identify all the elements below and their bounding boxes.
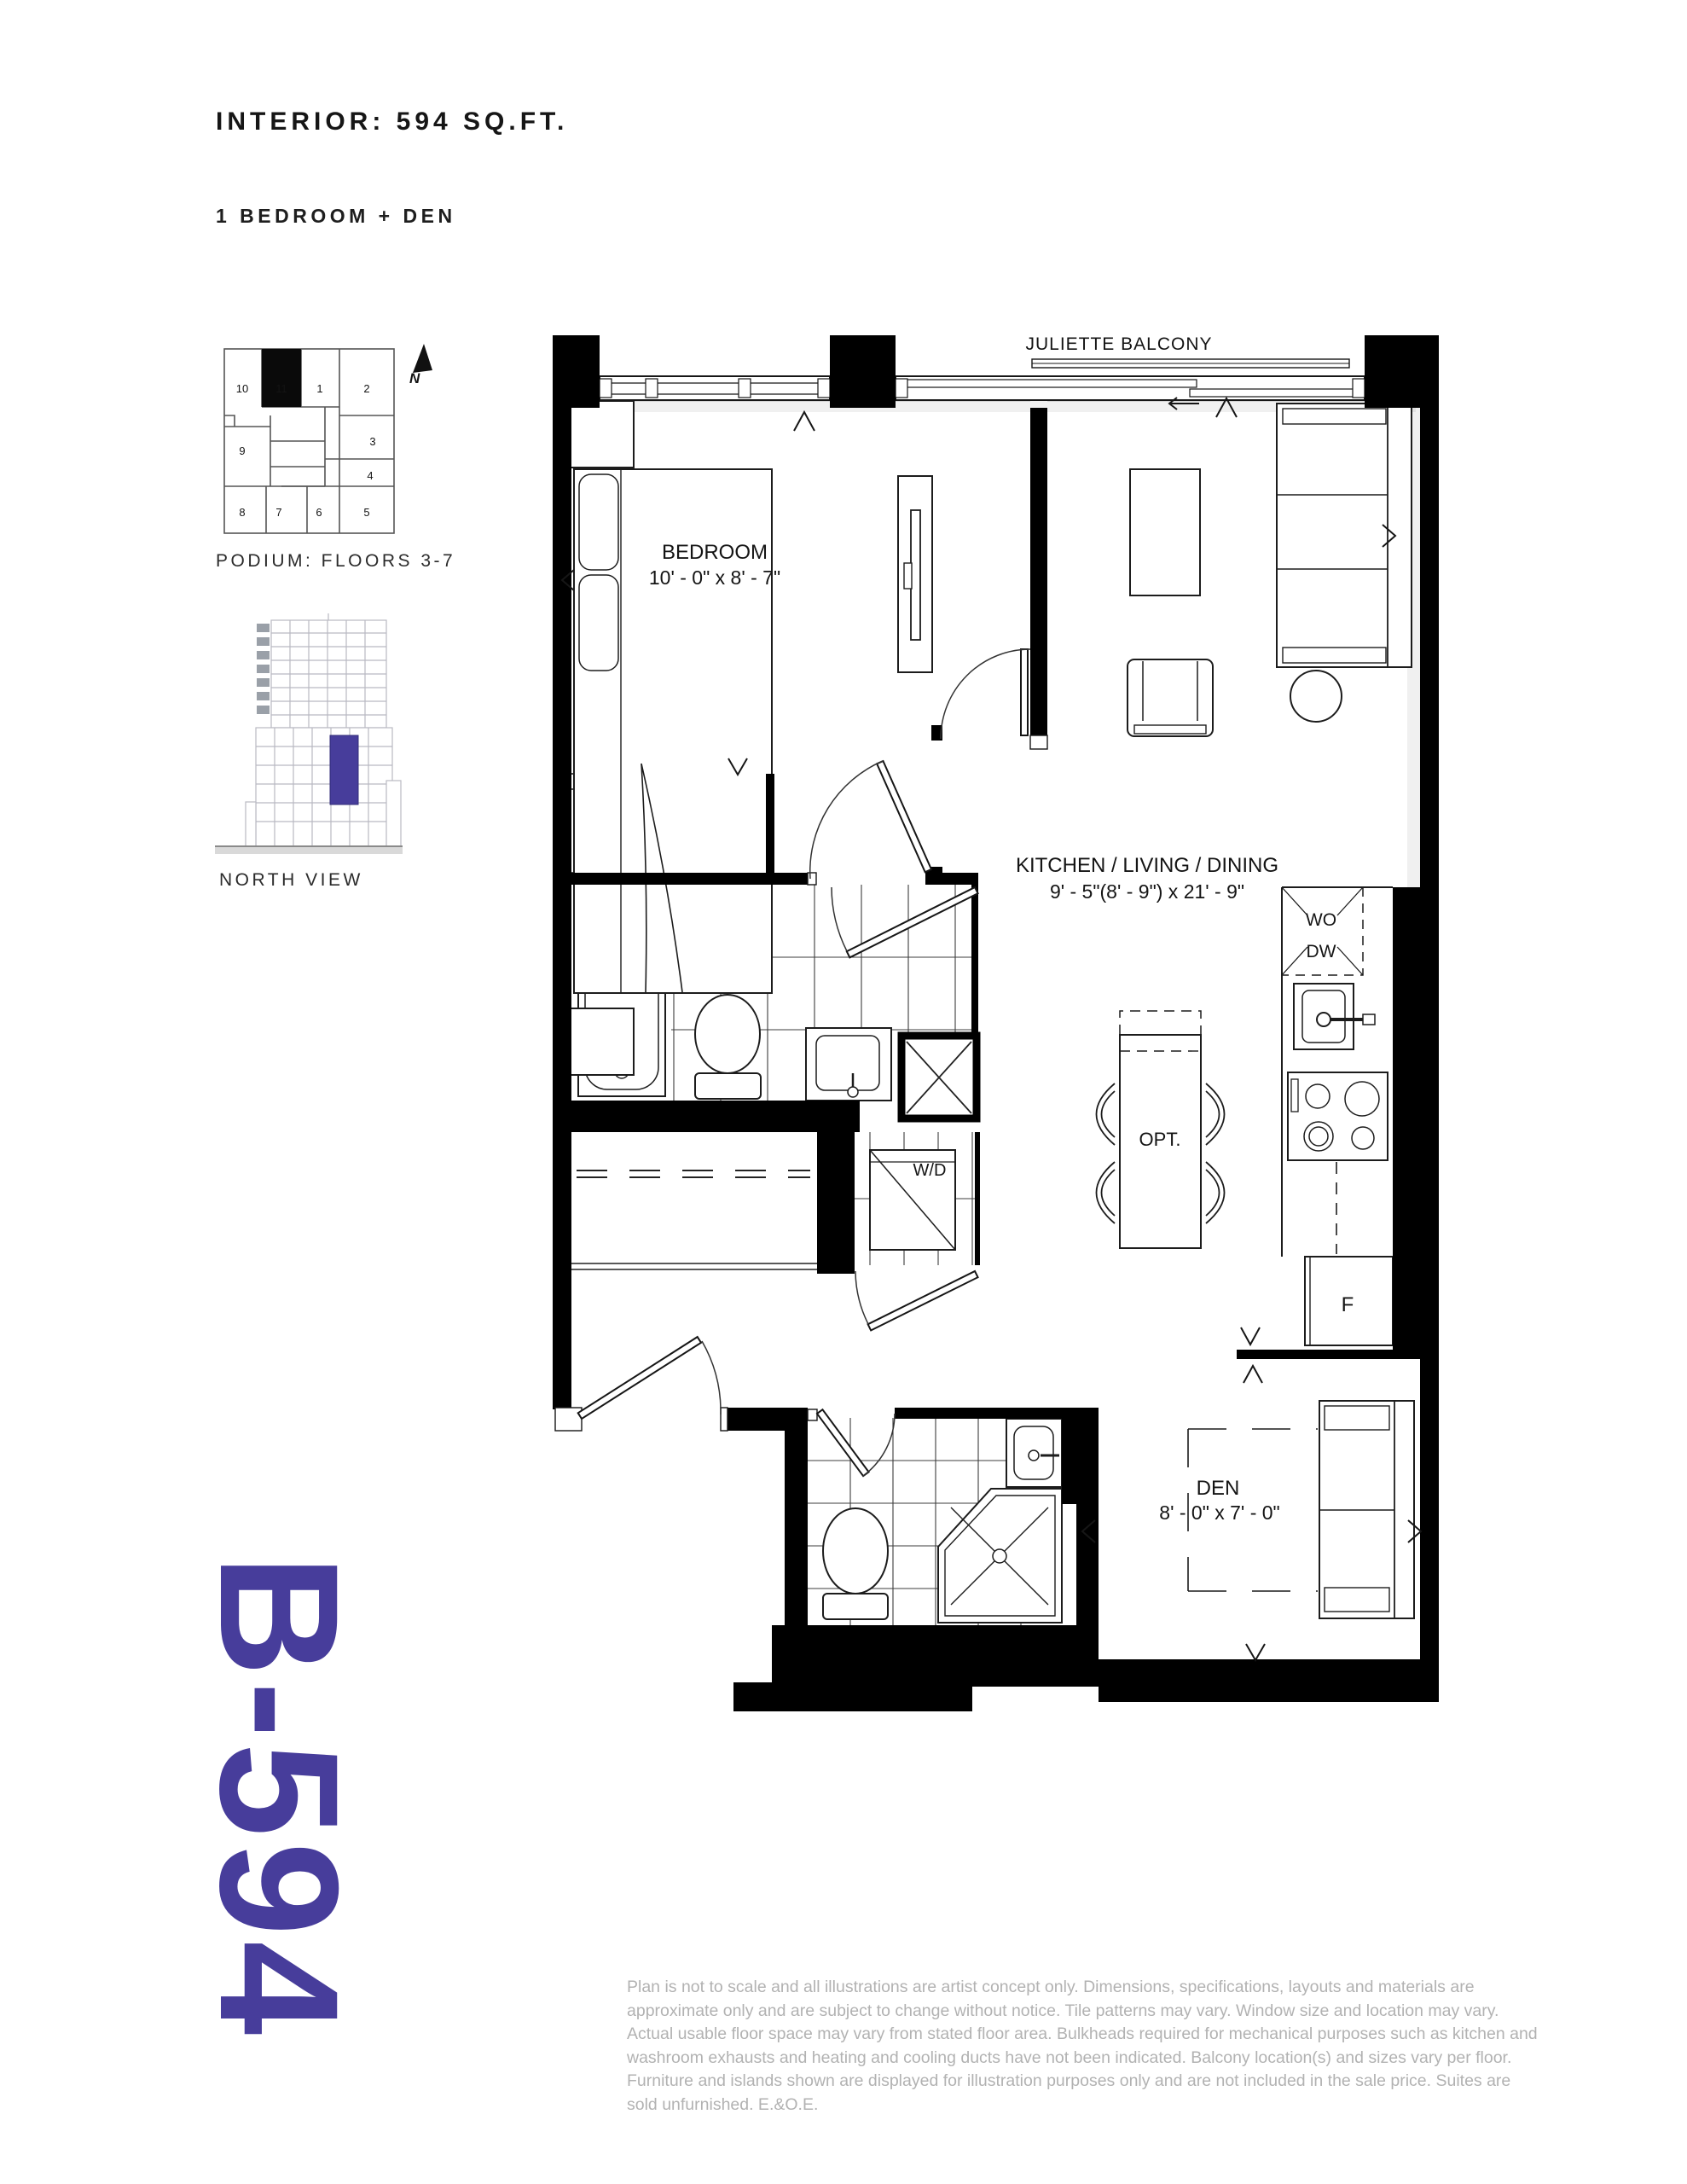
pillow (579, 575, 618, 671)
nightstand (567, 1008, 634, 1075)
chevron-down-icon (1246, 1644, 1265, 1660)
dishwasher-label: DW (1307, 942, 1336, 961)
sofa (1277, 404, 1412, 667)
keyplan-unit-numbers: 10 11 1 2 3 4 5 6 7 8 9 (236, 382, 376, 519)
chevron-up-icon (1244, 1366, 1262, 1383)
washer-dryer-label: W/D (913, 1161, 947, 1180)
bedroom-door-swing (810, 761, 883, 879)
room-name-den: DEN (1197, 1477, 1240, 1500)
keyplan: 10 11 1 2 3 4 5 6 7 8 9 N (213, 322, 443, 544)
living-furniture (898, 404, 1412, 736)
bedroom-furniture (567, 401, 772, 1075)
bedroom-door-leaf (877, 761, 931, 872)
bedroom-window (600, 376, 830, 400)
unit-number-highlighted: 11 (275, 382, 287, 395)
bathroom-2 (823, 1419, 1062, 1623)
pillow (579, 474, 618, 570)
unit-number: 10 (236, 382, 248, 395)
elevation-ground (215, 846, 403, 854)
entry-door-swing (702, 1341, 721, 1414)
balcony-label: JULIETTE BALCONY (1025, 334, 1212, 354)
fridge-label: F (1342, 1293, 1354, 1316)
room-dims-den: 8' - 0" x 7' - 0" (1159, 1501, 1279, 1524)
faucet-icon (1317, 1013, 1330, 1026)
toilet-bowl (695, 995, 760, 1073)
entry-door-leaf (578, 1337, 701, 1419)
keyplan-highlight-unit (262, 349, 301, 407)
svg-text:N: N (409, 370, 420, 386)
unit-number: 5 (363, 506, 369, 519)
faucet-icon (1029, 1450, 1039, 1461)
disclaimer-text: Plan is not to scale and all illustratio… (627, 1976, 1541, 2117)
chevron-up-icon (794, 412, 815, 431)
foyer-closet-rod (577, 1170, 810, 1177)
shower-drain (993, 1549, 1006, 1563)
optional-island-label: OPT. (1139, 1129, 1181, 1150)
page-subtitle: 1 BEDROOM + DEN (216, 205, 456, 228)
floor-plan: JULIETTE BALCONY BEDROOM 10' - 0" x 8' -… (512, 316, 1484, 1749)
toilet-tank-2 (823, 1594, 888, 1619)
page-title: INTERIOR: 594 SQ.FT. (216, 107, 568, 136)
chevron-down-icon (1241, 1327, 1260, 1345)
building-elevation (209, 607, 414, 863)
unit-code: B-594 (194, 1554, 363, 2184)
windows (571, 359, 1418, 400)
north-arrow-icon: N (409, 344, 432, 386)
unit-number: 4 (367, 469, 373, 482)
elevation-drawing (246, 613, 401, 847)
laundry-door-leaf (868, 1271, 978, 1330)
coffee-table (1130, 469, 1200, 595)
unit-number: 1 (316, 382, 322, 395)
room-name-bedroom: BEDROOM (662, 541, 768, 564)
unit-number: 7 (275, 506, 281, 519)
wall-oven-label: WO (1306, 910, 1336, 930)
toilet-bowl-2 (823, 1508, 888, 1594)
laundry-door-swing (855, 1271, 868, 1324)
unit-number: 8 (239, 506, 245, 519)
room-dims-kld: 9' - 5"(8' - 9") x 21' - 9" (1050, 880, 1244, 903)
unit-number: 6 (316, 506, 322, 519)
keyplan-caption: PODIUM: FLOORS 3-7 (216, 551, 455, 572)
nightstand (567, 401, 634, 468)
kitchen (1282, 887, 1393, 1345)
bath2-door-swing (863, 1414, 895, 1476)
unit-number: 9 (239, 444, 245, 457)
unit-number: 2 (363, 382, 369, 395)
hall-door-swing (941, 649, 1030, 739)
elevation-balcony-squares (257, 624, 270, 714)
bath-door-leaf (847, 887, 978, 957)
shaft (901, 1036, 977, 1118)
toilet-tank (695, 1073, 761, 1099)
elevation-unit-highlight (330, 735, 358, 804)
room-name-kld: KITCHEN / LIVING / DINING (1016, 854, 1278, 877)
bath2-door-leaf (817, 1409, 869, 1476)
side-table (1290, 671, 1342, 722)
bath-door-swing (832, 887, 847, 951)
elevation-caption: NORTH VIEW (219, 870, 363, 891)
hall-door-leaf (1021, 649, 1028, 735)
floorplan-page: INTERIOR: 594 SQ.FT. 1 BEDROOM + DEN 10 … (0, 0, 1687, 2184)
faucet-icon (848, 1087, 858, 1097)
room-dims-bedroom: 10' - 0" x 8' - 7" (649, 566, 780, 589)
unit-number: 3 (369, 435, 375, 448)
